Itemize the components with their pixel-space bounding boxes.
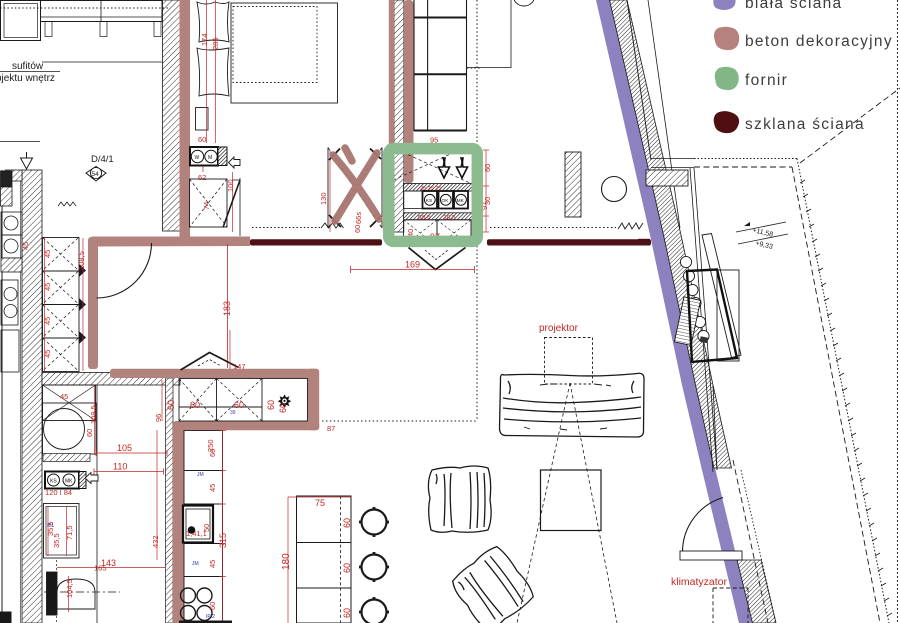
svg-text:54: 54	[92, 171, 100, 178]
svg-text:39: 39	[230, 410, 236, 416]
svg-text:104,5: 104,5	[65, 579, 74, 598]
svg-text:beton dekoracyjny: beton dekoracyjny	[745, 33, 893, 50]
svg-text:45: 45	[21, 242, 30, 250]
svg-text:130: 130	[319, 192, 328, 205]
svg-text:60: 60	[85, 429, 94, 437]
svg-text:M: M	[208, 155, 212, 161]
svg-text:MK: MK	[457, 198, 465, 204]
svg-text:szklana ściana: szklana ściana	[745, 116, 865, 133]
svg-text:38,5: 38,5	[443, 215, 456, 222]
svg-text:180: 180	[281, 553, 292, 570]
svg-text:bjektu wnętrz: bjektu wnętrz	[0, 73, 55, 84]
svg-text:30: 30	[483, 197, 492, 205]
svg-text:110: 110	[113, 462, 127, 472]
svg-text:IBI: IBI	[47, 523, 53, 529]
svg-text:60: 60	[342, 518, 352, 528]
svg-text:JM: JM	[192, 561, 199, 567]
svg-text:75: 75	[315, 498, 325, 508]
svg-text:60: 60	[342, 563, 352, 573]
svg-text:projektor: projektor	[539, 323, 579, 334]
svg-text:MK: MK	[65, 479, 73, 485]
svg-text:87: 87	[327, 424, 335, 433]
svg-text:60: 60	[208, 602, 217, 610]
svg-text:285: 285	[211, 37, 220, 50]
svg-text:45: 45	[208, 484, 217, 492]
svg-text:60: 60	[234, 400, 244, 410]
svg-text:biała ściana: biała ściana	[745, 0, 842, 12]
svg-text:62: 62	[198, 173, 206, 182]
svg-text:165: 165	[94, 564, 107, 573]
svg-text:IPI2: IPI2	[206, 614, 215, 620]
svg-text:35,5: 35,5	[52, 533, 61, 548]
svg-text:60: 60	[353, 225, 362, 233]
svg-text:60: 60	[266, 400, 276, 410]
svg-text:315: 315	[218, 533, 228, 548]
svg-text:60: 60	[208, 449, 217, 457]
svg-text:OK: OK	[442, 198, 450, 204]
svg-text:109,5: 109,5	[89, 405, 98, 424]
svg-text:45: 45	[60, 392, 68, 401]
svg-text:58,5: 58,5	[418, 215, 431, 222]
svg-text:60: 60	[278, 403, 288, 413]
svg-text:60: 60	[483, 164, 492, 172]
svg-text:W: W	[195, 155, 200, 161]
svg-text:D/4/1: D/4/1	[91, 154, 114, 165]
svg-text:sufitów: sufitów	[12, 61, 44, 72]
svg-text:66s: 66s	[354, 212, 363, 224]
svg-text:60: 60	[166, 400, 176, 410]
svg-text:183: 183	[222, 301, 232, 316]
svg-text:169: 169	[405, 260, 420, 270]
svg-text:fornir: fornir	[745, 72, 788, 89]
svg-text:25 25 25: 25 25 25	[420, 186, 441, 192]
svg-text:105: 105	[117, 443, 132, 453]
svg-text:120 I 84: 120 I 84	[45, 488, 72, 497]
svg-text:1,41,1: 1,41,1	[186, 529, 207, 538]
svg-text:147: 147	[233, 362, 246, 371]
svg-text:45: 45	[208, 560, 217, 568]
svg-text:60: 60	[342, 608, 352, 618]
svg-text:174: 174	[200, 33, 209, 46]
svg-text:60: 60	[190, 400, 200, 410]
svg-text:432: 432	[151, 535, 160, 548]
svg-text:klimatyzator: klimatyzator	[671, 576, 728, 588]
svg-text:108,5: 108,5	[77, 251, 86, 270]
svg-text:96: 96	[154, 414, 163, 422]
svg-text:KS: KS	[426, 198, 432, 204]
svg-text:KS: KS	[50, 479, 57, 485]
svg-text:60: 60	[198, 135, 206, 144]
svg-text:JM: JM	[197, 472, 204, 478]
